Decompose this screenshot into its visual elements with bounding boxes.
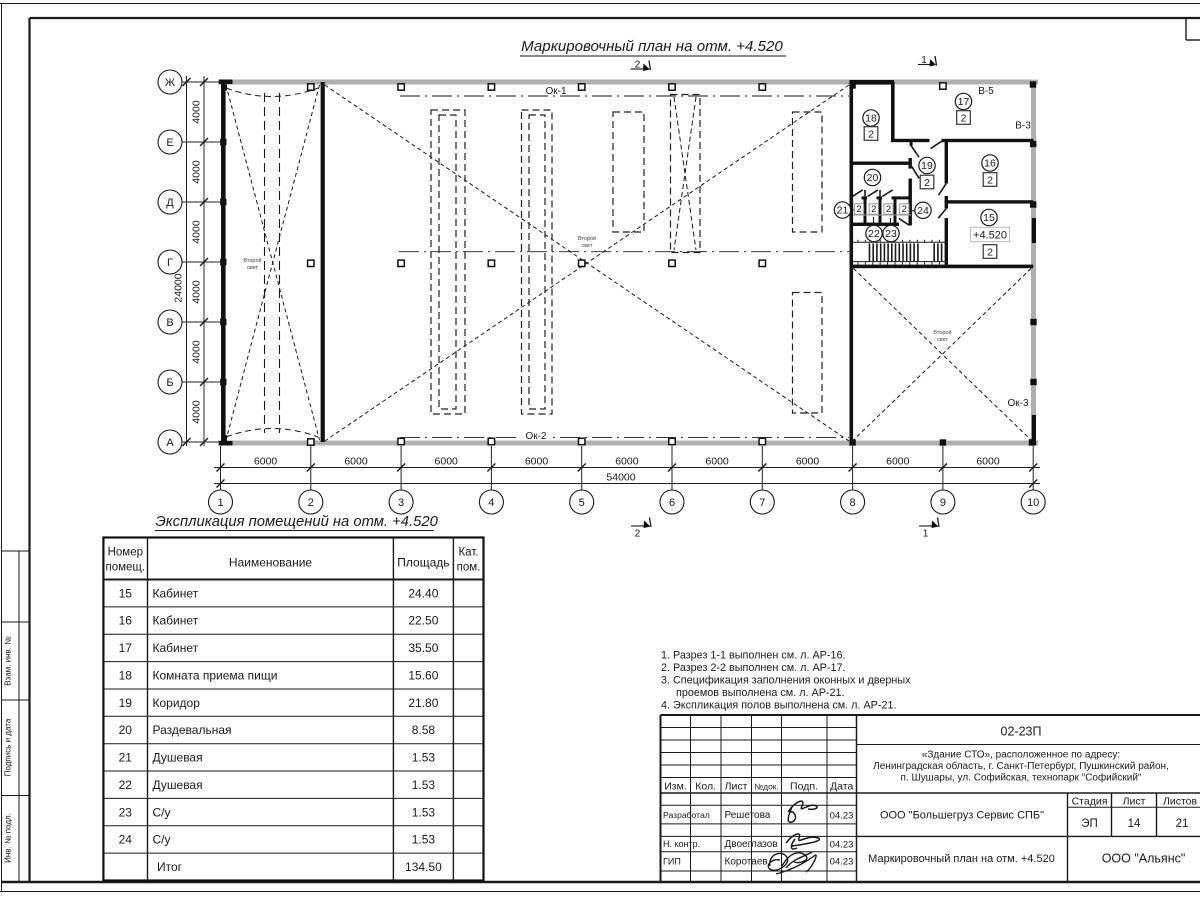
svg-text:17: 17 (958, 96, 970, 108)
svg-text:Взам. инв. №: Взам. инв. № (4, 636, 13, 686)
svg-text:2: 2 (871, 204, 876, 215)
svg-text:8.58: 8.58 (412, 723, 436, 737)
svg-text:1.53: 1.53 (412, 751, 436, 765)
svg-text:2: 2 (902, 204, 907, 215)
svg-text:04.23: 04.23 (830, 840, 854, 851)
svg-text:6000: 6000 (796, 456, 820, 468)
svg-text:Решетова: Решетова (725, 810, 771, 821)
svg-text:4000: 4000 (191, 100, 203, 124)
svg-text:2: 2 (856, 204, 861, 215)
svg-text:17: 17 (119, 641, 133, 655)
svg-text:1.53: 1.53 (412, 778, 436, 792)
svg-text:Б: Б (166, 377, 173, 389)
svg-text:1. Разрез 1-1 выполнен см. л.: 1. Разрез 1-1 выполнен см. л. АР-16. (661, 650, 845, 662)
svg-text:19: 19 (119, 696, 133, 710)
svg-text:Листов: Листов (1163, 796, 1198, 808)
svg-text:Ок-2: Ок-2 (525, 431, 546, 442)
svg-text:19: 19 (921, 160, 933, 172)
svg-text:2: 2 (924, 177, 930, 189)
svg-text:Ок-1: Ок-1 (545, 86, 566, 97)
svg-text:24: 24 (119, 833, 133, 847)
svg-text:Стадия: Стадия (1072, 796, 1108, 808)
svg-text:Кабинет: Кабинет (153, 586, 199, 600)
svg-text:ООО "Альянс": ООО "Альянс" (1102, 852, 1186, 866)
svg-text:Е: Е (166, 137, 173, 149)
svg-text:проемов выполнена см. л. АР-21: проемов выполнена см. л. АР-21. (676, 687, 845, 699)
svg-text:Н. контр.: Н. контр. (663, 839, 700, 849)
svg-text:35.50: 35.50 (408, 641, 438, 655)
svg-text:2: 2 (987, 246, 993, 258)
svg-text:8: 8 (850, 497, 856, 509)
svg-text:свет: свет (581, 243, 592, 249)
svg-text:ЭП: ЭП (1081, 818, 1098, 830)
svg-text:54000: 54000 (606, 472, 635, 484)
svg-text:4. Экспликация полов выполнена: 4. Экспликация полов выполнена см. л. АР… (661, 700, 896, 712)
svg-text:Второй: Второй (933, 329, 951, 336)
svg-text:21: 21 (1176, 818, 1189, 830)
svg-text:Маркировочный план на отм. +4.: Маркировочный план на отм. +4.520 (868, 853, 1055, 865)
svg-text:Подп.: Подп. (790, 781, 818, 793)
svg-text:Изм.: Изм. (664, 781, 687, 793)
svg-text:4000: 4000 (191, 280, 203, 304)
svg-text:Ленинградская область, г. Санк: Ленинградская область, г. Санкт-Петербур… (873, 760, 1169, 772)
svg-text:21.80: 21.80 (408, 696, 438, 710)
svg-text:пом.: пом. (457, 562, 481, 574)
svg-text:24: 24 (917, 205, 929, 217)
svg-text:15: 15 (119, 586, 133, 600)
svg-text:В-5: В-5 (978, 86, 994, 97)
svg-text:Душевая: Душевая (153, 751, 203, 765)
svg-text:Душевая: Душевая (153, 778, 203, 792)
svg-text:Двоеглазов: Двоеглазов (725, 839, 778, 850)
svg-text:4000: 4000 (191, 160, 203, 184)
svg-text:6000: 6000 (254, 456, 278, 468)
svg-text:Комната приема пищи: Комната приема пищи (153, 669, 278, 683)
svg-text:02-23П: 02-23П (1001, 725, 1042, 739)
svg-text:Ок-3: Ок-3 (1007, 398, 1028, 409)
svg-text:6000: 6000 (886, 456, 910, 468)
svg-text:20: 20 (867, 172, 879, 184)
svg-text:Кол.: Кол. (695, 781, 716, 793)
svg-text:21: 21 (837, 205, 849, 217)
svg-text:16: 16 (984, 158, 996, 170)
svg-text:6000: 6000 (976, 456, 1000, 468)
svg-text:Кат.: Кат. (458, 547, 478, 559)
svg-text:Номер: Номер (108, 547, 143, 559)
svg-text:6000: 6000 (435, 456, 459, 468)
svg-text:6: 6 (669, 497, 675, 509)
svg-text:Раздевальная: Раздевальная (153, 723, 232, 737)
svg-text:п. Шушары, ул. Софийская, техн: п. Шушары, ул. Софийская, технопарк "Соф… (901, 772, 1142, 784)
svg-text:2. Разрез 2-2 выполнен см. л.: 2. Разрез 2-2 выполнен см. л. АР-17. (661, 662, 845, 674)
svg-text:5: 5 (579, 497, 585, 509)
svg-text:6000: 6000 (615, 456, 639, 468)
svg-text:15: 15 (983, 212, 995, 224)
svg-text:свет: свет (937, 337, 948, 343)
svg-text:Лист: Лист (1123, 796, 1146, 808)
svg-text:№док.: №док. (754, 782, 778, 792)
svg-text:23: 23 (885, 228, 897, 240)
svg-text:18: 18 (865, 113, 877, 125)
svg-text:04.23: 04.23 (830, 811, 854, 822)
svg-text:С/у: С/у (153, 805, 171, 819)
svg-text:ООО "Большегруз Сервис СПБ": ООО "Большегруз Сервис СПБ" (880, 810, 1044, 822)
svg-text:Г: Г (167, 257, 173, 269)
svg-text:А: А (166, 437, 174, 449)
svg-text:1: 1 (923, 529, 929, 540)
svg-text:1: 1 (217, 497, 223, 509)
svg-text:Маркировочный план на отм. +4.: Маркировочный план на отм. +4.520 (521, 38, 783, 55)
svg-text:В-3: В-3 (1015, 121, 1031, 132)
svg-text:2: 2 (868, 128, 874, 140)
svg-text:Лист: Лист (725, 781, 748, 793)
svg-text:4000: 4000 (191, 220, 203, 244)
svg-text:В: В (166, 317, 173, 329)
svg-text:22: 22 (119, 778, 133, 792)
svg-text:Второй: Второй (578, 235, 596, 242)
svg-text:Кабинет: Кабинет (153, 641, 199, 655)
svg-text:04.23: 04.23 (830, 857, 854, 868)
svg-text:14: 14 (1128, 818, 1141, 830)
svg-text:4000: 4000 (191, 400, 203, 424)
svg-text:Подпись и дата: Подпись и дата (4, 718, 13, 776)
svg-text:Коридор: Коридор (153, 696, 201, 710)
svg-text:2: 2 (308, 497, 314, 509)
svg-text:3: 3 (398, 497, 404, 509)
svg-text:«Здание СТО», расположенное по: «Здание СТО», расположенное по адресу: (922, 750, 1120, 761)
svg-text:свет: свет (247, 265, 258, 271)
svg-text:2: 2 (961, 112, 967, 124)
svg-text:ГИП: ГИП (663, 857, 681, 867)
svg-text:1.53: 1.53 (412, 833, 436, 847)
svg-text:Разработал: Разработал (663, 810, 710, 820)
svg-text:Д: Д (166, 197, 174, 209)
svg-text:Ж: Ж (165, 77, 175, 89)
svg-text:4000: 4000 (191, 340, 203, 364)
svg-text:24.40: 24.40 (408, 586, 438, 600)
svg-text:2: 2 (886, 204, 891, 215)
svg-text:6000: 6000 (344, 456, 368, 468)
svg-text:Второй: Второй (243, 257, 261, 264)
svg-text:23: 23 (119, 805, 133, 819)
svg-text:16: 16 (119, 614, 133, 628)
svg-text:22: 22 (868, 228, 880, 240)
svg-text:Дата: Дата (830, 781, 853, 793)
svg-text:1.53: 1.53 (412, 805, 436, 819)
svg-text:9: 9 (940, 497, 946, 509)
svg-text:7: 7 (759, 497, 765, 509)
svg-text:10: 10 (1027, 497, 1039, 509)
svg-text:2: 2 (987, 174, 993, 186)
svg-text:20: 20 (119, 723, 133, 737)
svg-text:+4.520: +4.520 (973, 230, 1007, 242)
svg-text:4: 4 (488, 497, 494, 509)
svg-text:помещ.: помещ. (106, 562, 146, 574)
svg-text:Площадь: Площадь (397, 556, 449, 570)
svg-text:Кабинет: Кабинет (153, 614, 199, 628)
svg-text:22.50: 22.50 (408, 614, 438, 628)
svg-text:6000: 6000 (705, 456, 729, 468)
svg-text:18: 18 (119, 669, 133, 683)
svg-text:21: 21 (119, 751, 133, 765)
svg-text:Наименование: Наименование (229, 556, 313, 570)
svg-text:24000: 24000 (173, 273, 185, 302)
svg-text:Коротаев: Коротаев (725, 857, 768, 868)
svg-text:3. Спецификация заполнения око: 3. Спецификация заполнения оконных и две… (661, 675, 911, 687)
svg-text:Итог: Итог (157, 860, 183, 874)
svg-text:Инв. № подл.: Инв. № подл. (4, 813, 13, 863)
svg-text:Экспликация помещений на отм.: Экспликация помещений на отм. +4.520 (156, 514, 439, 530)
svg-text:С/у: С/у (153, 833, 171, 847)
svg-text:15.60: 15.60 (408, 669, 438, 683)
svg-text:134.50: 134.50 (405, 860, 442, 874)
svg-text:6000: 6000 (525, 456, 549, 468)
svg-text:2: 2 (635, 529, 641, 540)
